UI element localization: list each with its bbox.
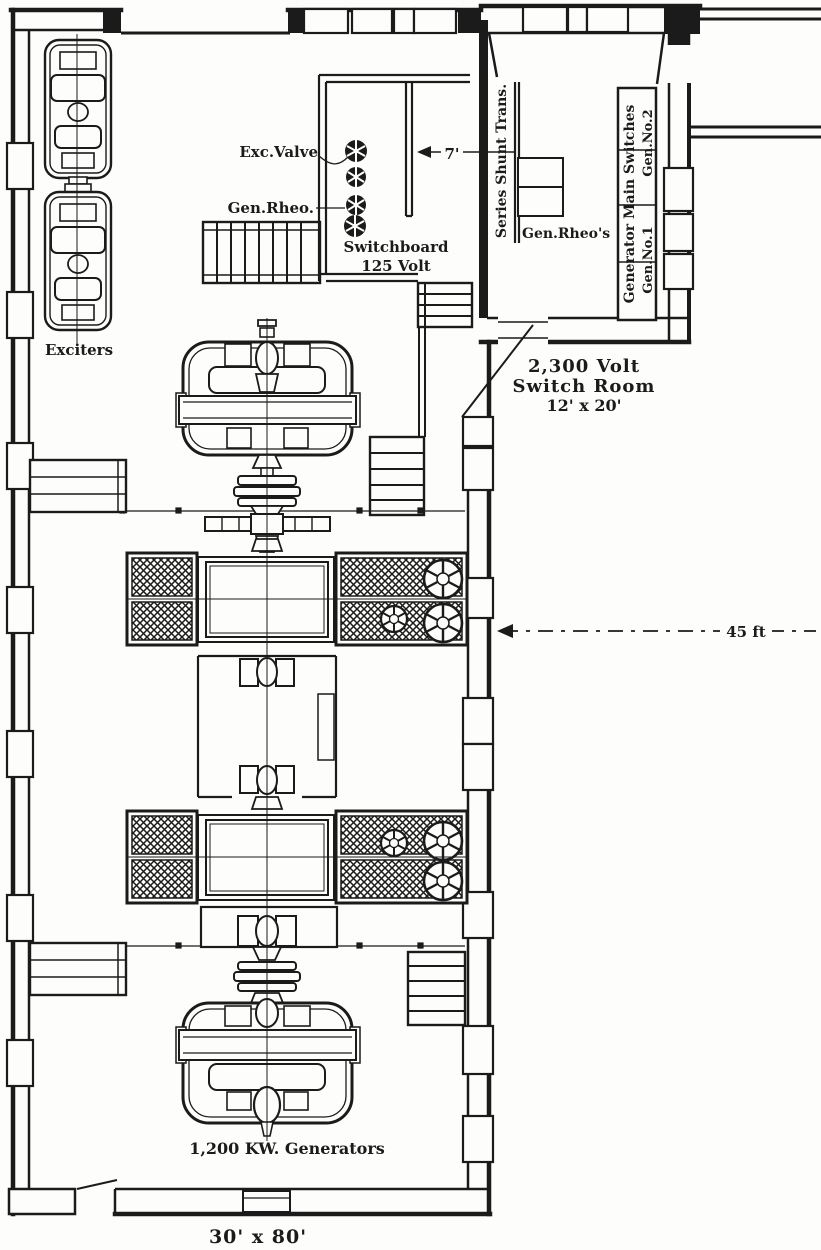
label-exc-valve: Exc.Valve — [239, 143, 318, 161]
spoked-wheel — [424, 560, 462, 598]
gen-rheo-boxes — [518, 158, 563, 216]
stair-switchboard — [418, 283, 472, 327]
dial-icon — [344, 215, 366, 237]
label-gen-no2: Gen.No.2 — [641, 109, 656, 176]
spoked-wheel — [381, 606, 407, 632]
spoked-wheel — [424, 862, 462, 900]
generator-unit-2 — [127, 797, 467, 903]
label-switch-room-2: Switch Room — [513, 376, 656, 397]
dial-icon — [346, 195, 366, 215]
dial-icon — [345, 140, 367, 162]
label-dim-45ft: 45 ft — [726, 623, 766, 641]
spoked-wheel — [424, 822, 462, 860]
switchboard-dials — [344, 140, 367, 237]
stair-rail — [419, 327, 425, 437]
dial-icon — [346, 167, 366, 187]
floor-plan-drawing: Exc.Valve Gen.Rheo. Switchboard 125 Volt… — [0, 0, 821, 1250]
label-gen-rheos: Gen.Rheo's — [522, 226, 610, 242]
left-wall — [7, 10, 33, 1214]
floor-plan-page: Exc.Valve Gen.Rheo. Switchboard 125 Volt… — [0, 0, 821, 1250]
label-generators: 1,200 KW. Generators — [189, 1139, 385, 1158]
bottom-wall — [9, 1180, 490, 1214]
label-switch-room-3: 12' x 20' — [546, 396, 621, 415]
spoked-wheel — [381, 830, 407, 856]
dimension-45ft — [497, 624, 818, 638]
right-wall — [463, 342, 493, 1214]
engine-unit-top — [176, 320, 360, 517]
bench-lower — [30, 943, 126, 995]
stair-lower-right — [408, 952, 465, 1025]
label-series-shunt-trans: Series Shunt Trans. — [494, 84, 510, 238]
label-switch-room-1: 2,300 Volt — [528, 356, 640, 377]
label-gen-rheo: Gen.Rheo. — [228, 199, 314, 217]
exciter-unit-2 — [45, 192, 111, 330]
label-leader-lines — [316, 155, 348, 208]
label-room-size: 30' x 80' — [209, 1226, 307, 1248]
exciter-unit-1 — [45, 40, 111, 178]
spoked-wheel — [424, 604, 462, 642]
label-generator-main-switches: Generator Main Switches — [622, 104, 638, 303]
top-wall — [11, 8, 481, 33]
label-switchboard-2: 125 Volt — [361, 257, 430, 275]
stair-upper-left — [203, 222, 320, 283]
label-exciters: Exciters — [45, 341, 113, 359]
exciter-coupling — [65, 177, 91, 192]
label-gen-no1: Gen.No.1 — [641, 226, 656, 293]
label-dim-7ft: 7' — [444, 145, 459, 163]
label-switchboard-1: Switchboard — [343, 238, 449, 256]
stair-mid — [370, 437, 424, 515]
bench-upper — [30, 460, 126, 512]
engine-unit-bottom — [176, 962, 360, 1136]
coupling-bottom — [201, 907, 337, 960]
generator-unit-1 — [127, 539, 467, 645]
